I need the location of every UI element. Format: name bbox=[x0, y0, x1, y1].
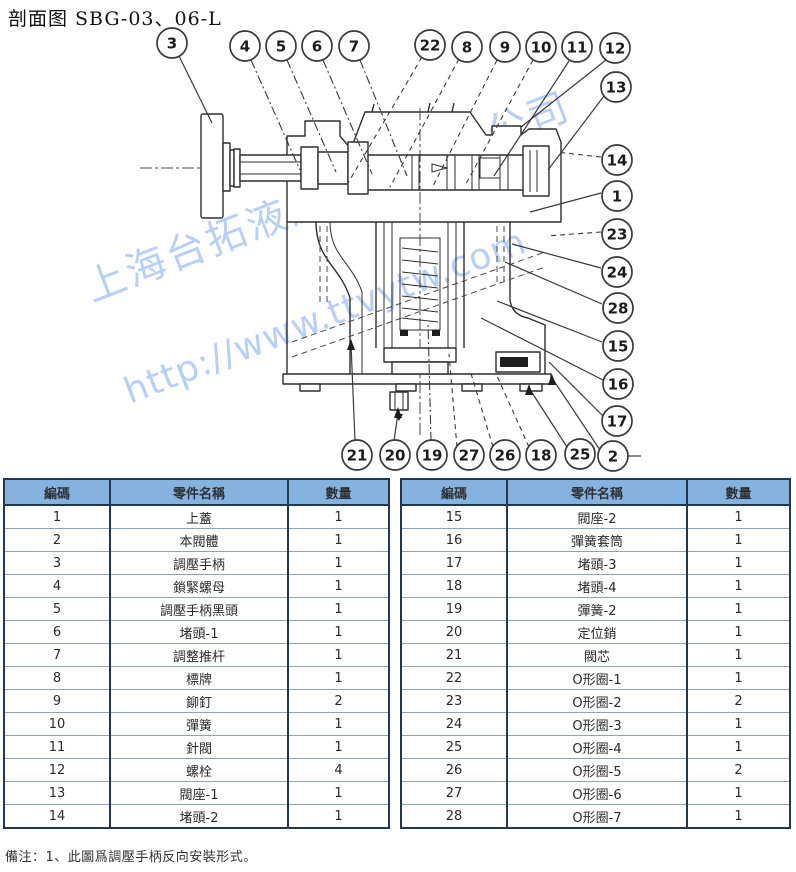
callout-4: 4 bbox=[230, 31, 260, 61]
svg-text:28: 28 bbox=[608, 300, 629, 318]
table-row: 7調整推杆1 bbox=[4, 644, 389, 667]
part-qty: 2 bbox=[687, 759, 790, 782]
svg-text:2: 2 bbox=[608, 448, 618, 466]
part-name: 螺栓 bbox=[110, 759, 288, 782]
table-row: 20定位銷1 bbox=[401, 621, 790, 644]
part-name: 針閥 bbox=[110, 736, 288, 759]
col-header-code: 編碼 bbox=[401, 479, 507, 505]
part-qty: 1 bbox=[288, 805, 389, 829]
part-code: 2 bbox=[4, 529, 110, 552]
part-name: 彈簧套筒 bbox=[507, 529, 687, 552]
table-row: 13閥座-11 bbox=[4, 782, 389, 805]
svg-text:14: 14 bbox=[607, 152, 628, 170]
part-code: 9 bbox=[4, 690, 110, 713]
part-code: 18 bbox=[401, 575, 507, 598]
part-qty: 1 bbox=[687, 713, 790, 736]
part-qty: 1 bbox=[288, 505, 389, 529]
valve-cross-section-diagram: 上海台拓液压机械有限公司 http://www.ttvytw.com bbox=[0, 0, 796, 475]
table-row: 3調壓手柄1 bbox=[4, 552, 389, 575]
svg-text:10: 10 bbox=[531, 39, 552, 57]
adjust-rod bbox=[240, 155, 301, 181]
part-name: 定位銷 bbox=[507, 621, 687, 644]
table-row: 16彈簧套筒1 bbox=[401, 529, 790, 552]
svg-text:5: 5 bbox=[276, 38, 286, 56]
callout-10: 10 bbox=[526, 32, 556, 62]
part-code: 8 bbox=[4, 667, 110, 690]
svg-text:12: 12 bbox=[605, 40, 626, 58]
svg-text:18: 18 bbox=[531, 447, 552, 465]
svg-text:4: 4 bbox=[240, 38, 250, 56]
parts-table-left: 編碼 零件名稱 數量 1上蓋12本閥體13調壓手柄14鎖緊螺母15調壓手柄黑頭1… bbox=[3, 478, 390, 829]
part-qty: 4 bbox=[288, 759, 389, 782]
adjust-handle bbox=[201, 114, 223, 218]
svg-text:11: 11 bbox=[567, 39, 588, 57]
col-header-code: 編碼 bbox=[4, 479, 110, 505]
part-qty: 1 bbox=[288, 552, 389, 575]
part-name: O形圈-6 bbox=[507, 782, 687, 805]
part-qty: 2 bbox=[288, 690, 389, 713]
part-code: 26 bbox=[401, 759, 507, 782]
svg-text:15: 15 bbox=[608, 338, 629, 356]
part-name: O形圈-3 bbox=[507, 713, 687, 736]
part-name: 調壓手柄黑頭 bbox=[110, 598, 288, 621]
part-code: 13 bbox=[4, 782, 110, 805]
part-name: 標牌 bbox=[110, 667, 288, 690]
part-name: 調壓手柄 bbox=[110, 552, 288, 575]
svg-text:19: 19 bbox=[422, 447, 443, 465]
callout-3: 3 bbox=[157, 28, 187, 58]
part-name: 堵頭-1 bbox=[110, 621, 288, 644]
part-qty: 1 bbox=[687, 621, 790, 644]
table-row: 9鉚釘2 bbox=[4, 690, 389, 713]
part-name: 本閥體 bbox=[110, 529, 288, 552]
svg-text:27: 27 bbox=[459, 447, 480, 465]
part-code: 21 bbox=[401, 644, 507, 667]
part-code: 28 bbox=[401, 805, 507, 829]
part-qty: 1 bbox=[687, 644, 790, 667]
table-header-row: 編碼 零件名稱 數量 bbox=[401, 479, 790, 505]
table-row: 24O形圈-31 bbox=[401, 713, 790, 736]
part-name: 堵頭-3 bbox=[507, 552, 687, 575]
table-row: 22O形圈-11 bbox=[401, 667, 790, 690]
part-code: 4 bbox=[4, 575, 110, 598]
part-name: 閥座-1 bbox=[110, 782, 288, 805]
part-code: 14 bbox=[4, 805, 110, 829]
callout-22: 22 bbox=[415, 30, 445, 60]
svg-text:3: 3 bbox=[167, 35, 177, 53]
callout-25: 25 bbox=[565, 439, 595, 469]
table-row: 5調壓手柄黑頭1 bbox=[4, 598, 389, 621]
svg-text:23: 23 bbox=[607, 226, 628, 244]
part-code: 27 bbox=[401, 782, 507, 805]
table-row: 19彈簧-21 bbox=[401, 598, 790, 621]
svg-text:17: 17 bbox=[607, 413, 628, 431]
callout-1: 1 bbox=[602, 181, 632, 211]
callout-11: 11 bbox=[562, 32, 592, 62]
callout-14: 14 bbox=[602, 145, 632, 175]
part-code: 7 bbox=[4, 644, 110, 667]
table-row: 11針閥1 bbox=[4, 736, 389, 759]
part-qty: 1 bbox=[288, 667, 389, 690]
col-header-qty: 數量 bbox=[288, 479, 389, 505]
part-qty: 1 bbox=[288, 529, 389, 552]
callout-12: 12 bbox=[600, 33, 630, 63]
svg-text:21: 21 bbox=[347, 447, 368, 465]
table-row: 15閥座-21 bbox=[401, 505, 790, 529]
callout-18: 18 bbox=[526, 440, 556, 470]
callout-27: 27 bbox=[454, 440, 484, 470]
callout-20: 20 bbox=[380, 440, 410, 470]
part-name: 彈簧 bbox=[110, 713, 288, 736]
svg-text:25: 25 bbox=[570, 446, 591, 464]
callout-26: 26 bbox=[490, 440, 520, 470]
part-code: 5 bbox=[4, 598, 110, 621]
part-name: O形圈-5 bbox=[507, 759, 687, 782]
part-qty: 1 bbox=[288, 644, 389, 667]
table-row: 8標牌1 bbox=[4, 667, 389, 690]
callout-23: 23 bbox=[602, 219, 632, 249]
table-row: 6堵頭-11 bbox=[4, 621, 389, 644]
page: 剖面图 SBG-03、06-L 上海台拓液压机械有限公司 http://www.… bbox=[0, 0, 796, 872]
part-code: 1 bbox=[4, 505, 110, 529]
end-plug bbox=[523, 146, 549, 196]
part-name: O形圈-1 bbox=[507, 667, 687, 690]
svg-text:1: 1 bbox=[612, 188, 622, 206]
svg-text:22: 22 bbox=[420, 37, 441, 55]
table-row: 14堵頭-21 bbox=[4, 805, 389, 829]
part-name: O形圈-7 bbox=[507, 805, 687, 829]
part-code: 19 bbox=[401, 598, 507, 621]
part-code: 25 bbox=[401, 736, 507, 759]
svg-text:26: 26 bbox=[495, 447, 516, 465]
table-row: 1上蓋1 bbox=[4, 505, 389, 529]
part-code: 11 bbox=[4, 736, 110, 759]
part-name: 閥芯 bbox=[507, 644, 687, 667]
part-qty: 1 bbox=[288, 575, 389, 598]
part-qty: 1 bbox=[687, 552, 790, 575]
callout-7: 7 bbox=[339, 31, 369, 61]
part-qty: 1 bbox=[288, 736, 389, 759]
callout-28: 28 bbox=[603, 293, 633, 323]
table-row: 18堵頭-41 bbox=[401, 575, 790, 598]
table-row: 12螺栓4 bbox=[4, 759, 389, 782]
part-name: 鎖緊螺母 bbox=[110, 575, 288, 598]
callout-24: 24 bbox=[602, 257, 632, 287]
part-code: 10 bbox=[4, 713, 110, 736]
table-row: 10彈簧1 bbox=[4, 713, 389, 736]
table-row: 4鎖緊螺母1 bbox=[4, 575, 389, 598]
col-header-qty: 數量 bbox=[687, 479, 790, 505]
part-qty: 1 bbox=[288, 621, 389, 644]
part-name: O形圈-2 bbox=[507, 690, 687, 713]
callout-13: 13 bbox=[601, 72, 631, 102]
svg-text:7: 7 bbox=[349, 38, 359, 56]
part-name: 堵頭-4 bbox=[507, 575, 687, 598]
table-row: 21閥芯1 bbox=[401, 644, 790, 667]
part-qty: 2 bbox=[687, 690, 790, 713]
svg-text:20: 20 bbox=[385, 447, 406, 465]
table-row: 28O形圈-71 bbox=[401, 805, 790, 829]
callout-15: 15 bbox=[603, 331, 633, 361]
part-qty: 1 bbox=[288, 713, 389, 736]
part-code: 17 bbox=[401, 552, 507, 575]
svg-text:9: 9 bbox=[500, 39, 510, 57]
part-name: 調整推杆 bbox=[110, 644, 288, 667]
part-code: 3 bbox=[4, 552, 110, 575]
callout-21: 21 bbox=[342, 440, 372, 470]
part-code: 15 bbox=[401, 505, 507, 529]
callout-19: 19 bbox=[417, 440, 447, 470]
table-row: 25O形圈-41 bbox=[401, 736, 790, 759]
part-qty: 1 bbox=[687, 529, 790, 552]
callout-5: 5 bbox=[266, 31, 296, 61]
table-header-row: 編碼 零件名稱 數量 bbox=[4, 479, 389, 505]
part-name: 上蓋 bbox=[110, 505, 288, 529]
part-code: 20 bbox=[401, 621, 507, 644]
table-row: 26O形圈-52 bbox=[401, 759, 790, 782]
part-qty: 1 bbox=[687, 736, 790, 759]
callout-6: 6 bbox=[302, 31, 332, 61]
lock-nut bbox=[301, 147, 318, 189]
part-code: 23 bbox=[401, 690, 507, 713]
seal-stack bbox=[500, 357, 528, 367]
callout-8: 8 bbox=[452, 32, 482, 62]
part-code: 22 bbox=[401, 667, 507, 690]
svg-text:16: 16 bbox=[608, 376, 629, 394]
part-code: 16 bbox=[401, 529, 507, 552]
callout-2: 2 bbox=[598, 441, 628, 471]
table-row: 27O形圈-61 bbox=[401, 782, 790, 805]
part-qty: 1 bbox=[687, 805, 790, 829]
part-qty: 1 bbox=[687, 598, 790, 621]
bottom-plug bbox=[390, 392, 408, 410]
svg-text:13: 13 bbox=[606, 79, 627, 97]
svg-text:8: 8 bbox=[462, 39, 472, 57]
table-row: 23O形圈-22 bbox=[401, 690, 790, 713]
part-name: O形圈-4 bbox=[507, 736, 687, 759]
part-qty: 1 bbox=[288, 782, 389, 805]
part-qty: 1 bbox=[687, 575, 790, 598]
callout-16: 16 bbox=[603, 369, 633, 399]
footnote: 備注：1、此圖爲調壓手柄反向安裝形式。 bbox=[5, 846, 257, 865]
col-header-part-name: 零件名稱 bbox=[110, 479, 288, 505]
svg-text:6: 6 bbox=[312, 38, 322, 56]
part-code: 6 bbox=[4, 621, 110, 644]
part-name: 彈簧-2 bbox=[507, 598, 687, 621]
part-name: 鉚釘 bbox=[110, 690, 288, 713]
part-qty: 1 bbox=[687, 782, 790, 805]
callout-9: 9 bbox=[490, 32, 520, 62]
part-qty: 1 bbox=[687, 667, 790, 690]
parts-table-right: 編碼 零件名稱 數量 15閥座-2116彈簧套筒117堵頭-3118堵頭-411… bbox=[400, 478, 791, 829]
callout-17: 17 bbox=[602, 406, 632, 436]
part-qty: 1 bbox=[687, 505, 790, 529]
part-code: 24 bbox=[401, 713, 507, 736]
part-name: 閥座-2 bbox=[507, 505, 687, 529]
table-row: 2本閥體1 bbox=[4, 529, 389, 552]
valve-base-plate bbox=[283, 374, 551, 384]
table-row: 17堵頭-31 bbox=[401, 552, 790, 575]
col-header-part-name: 零件名稱 bbox=[507, 479, 687, 505]
part-name: 堵頭-2 bbox=[110, 805, 288, 829]
part-qty: 1 bbox=[288, 598, 389, 621]
part-code: 12 bbox=[4, 759, 110, 782]
svg-text:24: 24 bbox=[607, 264, 628, 282]
